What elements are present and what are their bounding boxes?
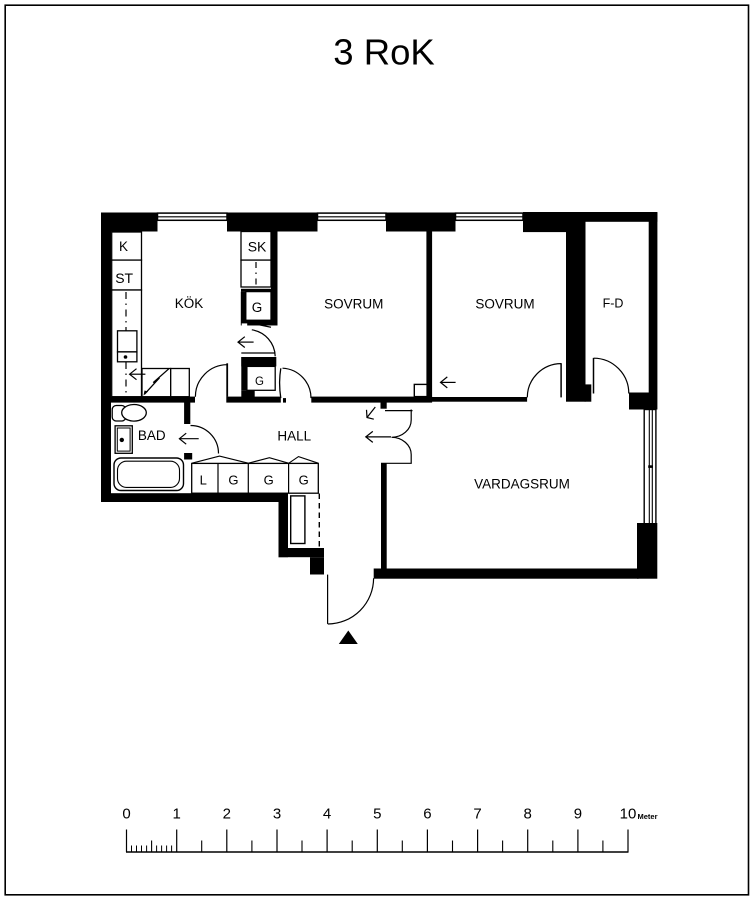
svg-text:G: G [264, 472, 274, 487]
svg-text:L: L [200, 472, 207, 487]
svg-text:9: 9 [574, 806, 582, 823]
svg-text:G: G [228, 472, 238, 487]
svg-text:2: 2 [223, 806, 231, 823]
svg-text:6: 6 [423, 806, 431, 823]
svg-text:8: 8 [524, 806, 532, 823]
svg-text:3: 3 [273, 806, 281, 823]
svg-text:HALL: HALL [277, 429, 311, 444]
svg-text:K: K [119, 239, 128, 254]
svg-text:F-D: F-D [603, 297, 624, 311]
svg-text:G: G [299, 472, 309, 487]
svg-text:0: 0 [122, 806, 130, 823]
svg-text:VARDAGSRUM: VARDAGSRUM [474, 477, 570, 492]
svg-text:SK: SK [248, 238, 267, 254]
svg-text:G: G [252, 300, 263, 315]
svg-text:7: 7 [473, 806, 481, 823]
svg-text:SOVRUM: SOVRUM [324, 297, 383, 312]
svg-text:3 RoK: 3 RoK [333, 31, 434, 72]
svg-text:10: 10 [620, 806, 637, 823]
svg-text:G: G [255, 376, 264, 388]
svg-text:Meter: Meter [638, 812, 658, 821]
svg-text:BAD: BAD [138, 428, 166, 443]
svg-text:1: 1 [173, 806, 181, 823]
svg-text:ST: ST [115, 270, 133, 286]
svg-text:5: 5 [373, 806, 381, 823]
svg-text:4: 4 [323, 806, 331, 823]
svg-text:SOVRUM: SOVRUM [475, 297, 534, 312]
svg-text:KÖK: KÖK [175, 296, 204, 311]
